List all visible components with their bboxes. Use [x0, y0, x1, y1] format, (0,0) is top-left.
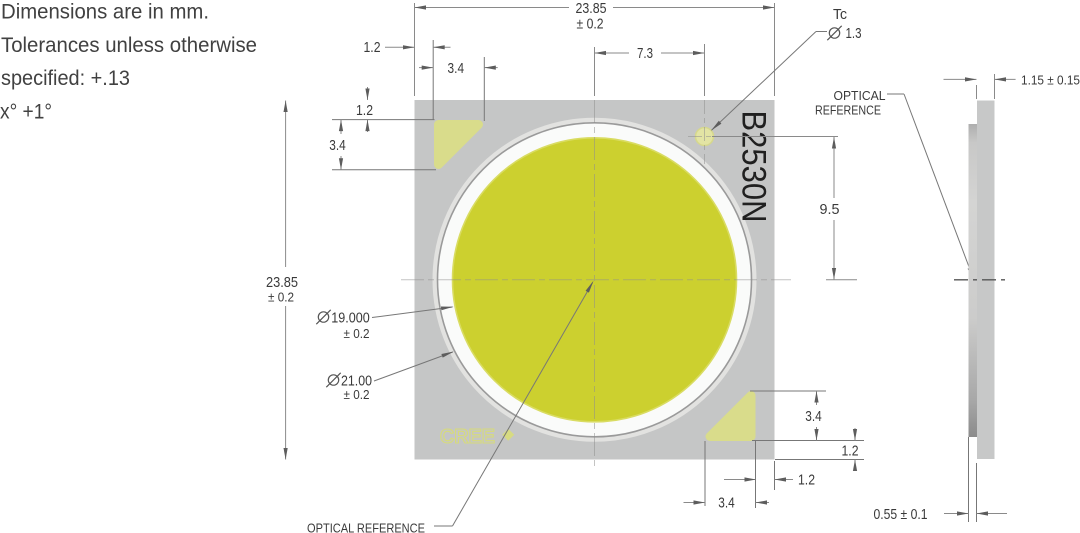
svg-text:± 0.2: ± 0.2: [268, 291, 294, 305]
svg-text:specified: +.13: specified: +.13: [1, 67, 130, 90]
svg-text:x° +1°: x° +1°: [0, 101, 52, 124]
svg-text:3.4: 3.4: [329, 138, 346, 154]
svg-text:9.5: 9.5: [820, 202, 840, 218]
svg-text:CREE: CREE: [440, 426, 495, 448]
svg-text:± 0.2: ± 0.2: [344, 327, 370, 341]
svg-text:3.4: 3.4: [448, 61, 465, 77]
svg-text:Tc: Tc: [833, 7, 847, 23]
svg-text:0.55 ± 0.1: 0.55 ± 0.1: [874, 507, 928, 523]
svg-text:Dimensions are in mm.: Dimensions are in mm.: [1, 1, 209, 24]
svg-text:1.2: 1.2: [364, 40, 381, 56]
svg-text:3.4: 3.4: [718, 496, 735, 512]
svg-text:1.2: 1.2: [356, 103, 373, 119]
svg-text:OPTICAL: OPTICAL: [834, 88, 886, 103]
svg-text:REFERENCE: REFERENCE: [815, 103, 881, 118]
svg-text:7.3: 7.3: [637, 46, 653, 62]
svg-text:19.000: 19.000: [331, 311, 370, 327]
svg-text:B2530N: B2530N: [735, 111, 773, 223]
svg-text:1.15 ± 0.15: 1.15 ± 0.15: [1021, 73, 1080, 88]
svg-text:1.2: 1.2: [798, 473, 815, 489]
svg-text:OPTICAL REFERENCE: OPTICAL REFERENCE: [307, 521, 425, 533]
svg-text:23.85: 23.85: [576, 1, 607, 17]
svg-text:1.3: 1.3: [846, 26, 862, 42]
svg-text:23.85: 23.85: [266, 275, 298, 291]
svg-text:1.2: 1.2: [842, 444, 859, 460]
svg-text:± 0.2: ± 0.2: [344, 388, 370, 402]
svg-text:3.4: 3.4: [805, 409, 822, 425]
svg-text:Tolerances unless otherwise: Tolerances unless otherwise: [1, 34, 257, 57]
svg-text:± 0.2: ± 0.2: [577, 17, 604, 33]
